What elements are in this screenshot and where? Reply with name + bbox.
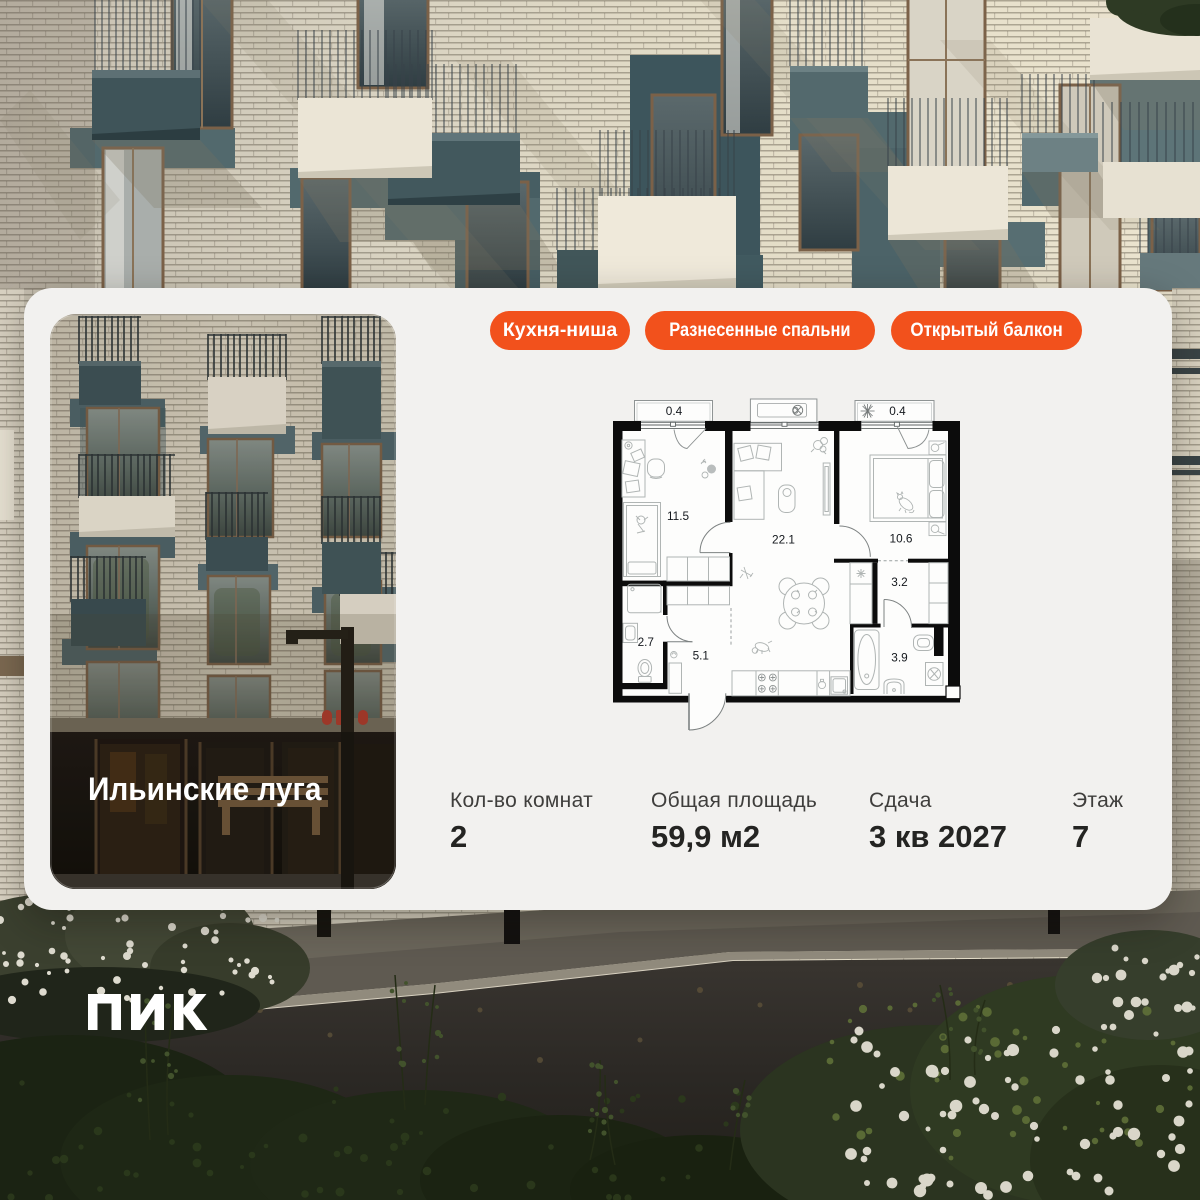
svg-text:5.1: 5.1 <box>693 649 709 663</box>
svg-text:22.1: 22.1 <box>772 533 795 547</box>
svg-text:10.6: 10.6 <box>890 532 913 546</box>
svg-text:0.4: 0.4 <box>889 404 906 418</box>
svg-text:3.9: 3.9 <box>891 651 907 665</box>
svg-text:2.7: 2.7 <box>638 635 654 649</box>
svg-text:3.2: 3.2 <box>891 575 907 589</box>
svg-text:11.5: 11.5 <box>667 509 690 523</box>
svg-text:0.4: 0.4 <box>666 404 683 418</box>
